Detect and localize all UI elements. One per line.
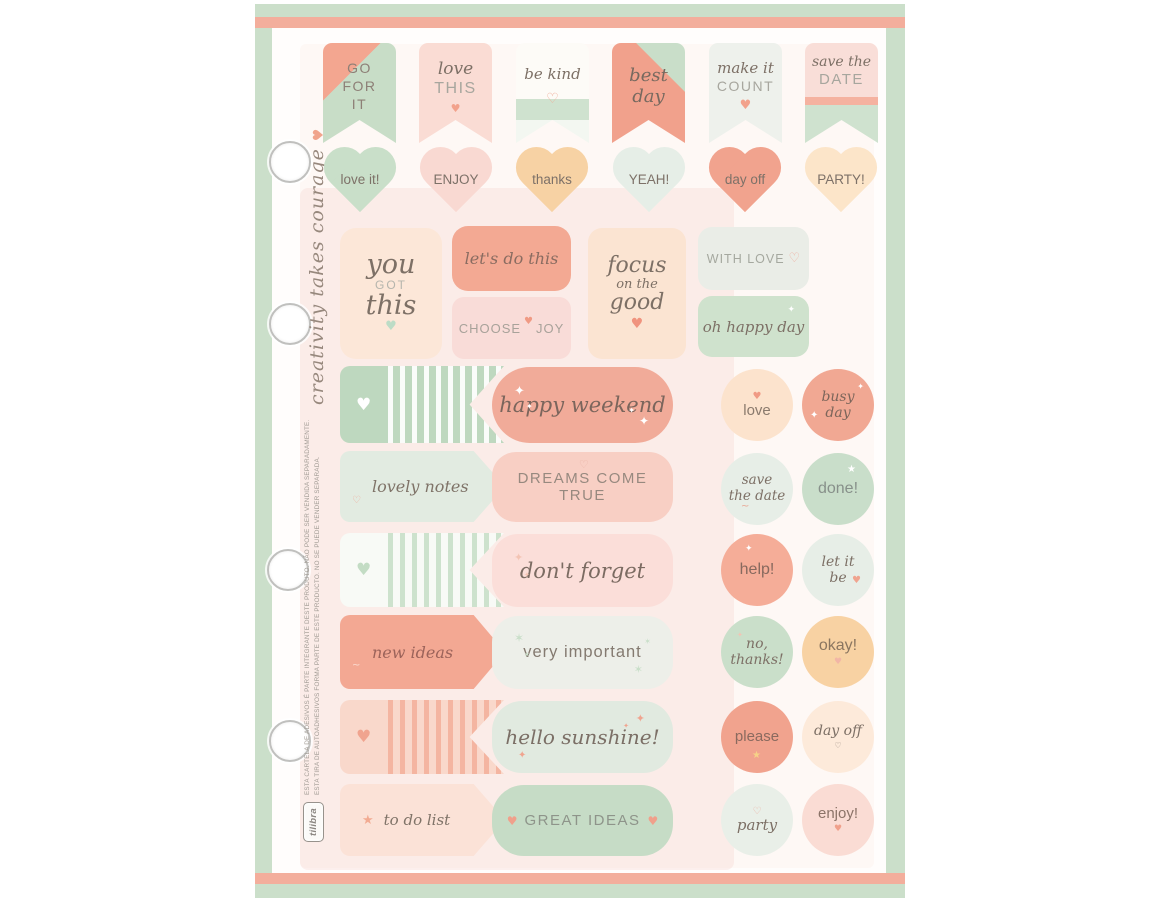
sticker-with-love: WITH LOVE ♡ — [698, 227, 809, 290]
flag-script: be kind — [524, 65, 580, 83]
star-icon: ✶ — [644, 638, 651, 646]
circle-text: party — [737, 817, 777, 834]
sticker-you-got-this: you GOT this ♥ — [340, 228, 442, 359]
sticker-circle-save-the-date: save the date ~ — [721, 453, 793, 525]
sticker-hello-sunshine: ✦ ✦ ✦ hello sunshine! — [492, 701, 673, 773]
sticker-happy-weekend: ✦ ✦ ✦ ✦ happy weekend — [492, 367, 673, 443]
card-text: oh happy day — [703, 318, 805, 336]
pill-text: don't forget — [520, 559, 645, 583]
heart-icon: ♥ — [631, 316, 644, 332]
circle-text: the date — [729, 489, 786, 505]
heart-label: love it! — [320, 172, 400, 187]
sticker-oh-happy-day: ✦ oh happy day — [698, 296, 809, 357]
sparkle-icon: ✦ — [514, 385, 525, 398]
card-word: JOY — [536, 321, 564, 336]
flag-line: IT — [352, 95, 367, 113]
heart-outline-icon: ♡ — [579, 459, 589, 470]
circle-text: okay! — [819, 637, 857, 655]
sparkle-icon: ✦ — [745, 545, 753, 554]
sparkle-icon: ✦ — [639, 415, 649, 427]
sticker-dreams-come-true: ♡ DREAMS COME TRUE — [492, 452, 673, 522]
sparkle-icon: ✦ — [623, 723, 629, 730]
pill-text: very important — [523, 643, 642, 662]
circle-text: let it — [822, 554, 855, 570]
flag-caps: COUNT — [717, 77, 774, 95]
sticker-circle-busy-day: ✦ ✦ busy day — [802, 369, 874, 441]
card-word: CHOOSE — [459, 321, 521, 336]
sticker-circle-party: ♡ party — [721, 784, 793, 856]
top-accent-bar — [255, 17, 905, 28]
sticker-circle-help: ✦ help! — [721, 534, 793, 606]
banner-text: to do list — [384, 811, 451, 829]
heart-icon: ♥ — [385, 319, 397, 334]
circle-text: no, — [746, 636, 768, 652]
flag-caps: DATE — [819, 70, 864, 90]
circle-text: day off — [814, 723, 862, 739]
card-line: good — [610, 292, 665, 314]
sticker-heart-party: PARTY! — [801, 149, 881, 219]
heart-icon: ♥ — [834, 824, 842, 834]
sticker-circle-love: ♥ love — [721, 369, 793, 441]
swash-icon: ~ — [741, 502, 749, 512]
sticker-heart-enjoy: ENJOY — [416, 149, 496, 219]
flag-line: GO — [347, 59, 372, 77]
sticker-dont-forget: ✦ ✦ don't forget — [492, 534, 673, 607]
sticker-circle-let-it-be: let it be ♥ — [802, 534, 874, 606]
heart-label: ENJOY — [416, 172, 496, 187]
legal-line-pt: ESTA CARTELA DE ADESIVOS É PARTE INTEGRA… — [303, 447, 313, 795]
star-icon: ★ — [362, 814, 374, 827]
pill-text: hello sunshine! — [505, 725, 659, 749]
sparkle-icon: ✦ — [810, 411, 818, 421]
card-line: focus — [607, 255, 666, 277]
card-text: let's do this — [465, 249, 559, 268]
heart-icon: ♥ — [852, 576, 861, 586]
binder-hole — [269, 303, 311, 345]
heart-icon: ♥ — [451, 102, 461, 115]
card-text: WITH LOVE — [707, 252, 785, 266]
heart-swash-icon: ♡ — [834, 741, 841, 750]
sticker-great-ideas: ♥ GREAT IDEAS ♥ — [492, 785, 673, 856]
sticker-sheet-photo: www.tilibra.com.br creativity takes cour… — [0, 0, 1160, 898]
card-line: this — [366, 292, 417, 319]
legal-line-es: ESTA TIRA DE AUTOADHESIVOS FORMA PARTE D… — [313, 447, 323, 795]
star-icon: ✶ — [524, 652, 530, 659]
circle-text: please — [735, 728, 779, 745]
sparkle-icon: ✦ — [857, 383, 864, 391]
sticker-circle-day-off: day off ♡ — [802, 701, 874, 773]
sticker-lets-do-this: let's do this — [452, 226, 571, 291]
sticker-heart-yeah: YEAH! — [609, 149, 689, 219]
card-line: you — [367, 253, 416, 277]
heart-label: YEAH! — [609, 172, 689, 187]
sticker-to-do-list: ★ to do list — [340, 784, 505, 856]
sticker-circle-please: please ★ — [721, 701, 793, 773]
circle-text: enjoy! — [818, 805, 858, 822]
sparkle-icon: ✦ — [628, 407, 635, 415]
heart-icon: ♥ — [834, 657, 842, 667]
sticker-new-ideas: new ideas ~ — [340, 615, 505, 689]
circle-text: help! — [740, 561, 775, 579]
flag-line: FOR — [342, 77, 376, 95]
heart-outline-icon: ♡ — [546, 91, 559, 107]
sparkle-icon: ✦ — [518, 751, 526, 761]
circle-text: be — [829, 570, 846, 586]
flag-script: love — [438, 59, 473, 79]
star-icon: ✦ — [787, 306, 795, 315]
bottom-accent-bar — [255, 873, 905, 884]
circle-text: save — [742, 473, 773, 489]
pill-text: GREAT IDEAS — [525, 812, 641, 829]
sticker-heart-day-off: day off — [705, 149, 785, 219]
legal-text: ESTA CARTELA DE ADESIVOS É PARTE INTEGRA… — [303, 447, 323, 795]
sticker-very-important: ✶ ✶ ✶ ✶ very important — [492, 616, 673, 689]
circle-text: thanks! — [730, 652, 783, 668]
heart-icon: ♥ — [356, 395, 371, 415]
sparkle-icon: ✦ — [526, 403, 533, 411]
heart-icon: ♥ — [356, 727, 371, 747]
sticker-circle-done: ★ done! — [802, 453, 874, 525]
flag-script: day — [632, 86, 664, 107]
heart-icon: ♥ — [753, 391, 762, 403]
flag-script: make it — [717, 59, 774, 77]
heart-icon: ♥ — [356, 560, 371, 580]
sparkle-icon: ✦ — [636, 713, 645, 724]
heart-swash-icon: ♡ — [352, 496, 361, 506]
heart-icon: ♥ — [524, 316, 533, 327]
heart-label: thanks — [512, 172, 592, 187]
sticker-circle-okay: okay! ♥ — [802, 616, 874, 688]
banner-text: new ideas — [372, 643, 453, 662]
heart-label: day off — [705, 172, 785, 187]
binder-hole — [269, 141, 311, 183]
star-icon: ★ — [752, 751, 761, 761]
pill-text: DREAMS COME TRUE — [492, 470, 673, 504]
sparkle-icon: ✦ — [514, 552, 523, 563]
circle-text: busy — [821, 389, 854, 405]
star-icon: ★ — [847, 465, 856, 475]
circle-text: love — [743, 402, 771, 419]
sparkle-icon: ✦ — [524, 572, 530, 579]
sticker-heart-love-it: love it! — [320, 149, 400, 219]
sticker-heart-thanks: thanks — [512, 149, 592, 219]
sticker-circle-no-thanks: ✦ no, thanks! — [721, 616, 793, 688]
circle-text: day — [825, 405, 850, 421]
circle-text: done! — [818, 480, 858, 498]
sticker-choose-joy: CHOOSE ♥ JOY — [452, 297, 571, 359]
heart-label: PARTY! — [801, 172, 881, 187]
sparkle-icon: ✦ — [737, 632, 743, 639]
tilibra-logo: tilibra — [303, 802, 324, 842]
star-icon: ✶ — [514, 632, 524, 644]
heart-icon: ♥ — [647, 814, 658, 828]
sticker-focus-on-the-good: focus on the good ♥ — [588, 228, 686, 359]
flag-caps: THIS — [434, 79, 476, 100]
banner-text: lovely notes — [372, 477, 469, 496]
brand-label: tilibra — [308, 808, 319, 836]
swash-icon: ~ — [352, 661, 360, 671]
star-icon: ✶ — [634, 664, 643, 675]
flag-script: save the — [812, 54, 871, 70]
heart-outline-icon: ♡ — [789, 251, 801, 266]
heart-icon: ♥ — [507, 814, 518, 828]
sticker-lovely-notes: lovely notes ♡ — [340, 451, 505, 522]
flag-script: best — [629, 65, 668, 86]
sticker-circle-enjoy: enjoy! ♥ — [802, 784, 874, 856]
heart-icon: ♥ — [740, 98, 752, 113]
